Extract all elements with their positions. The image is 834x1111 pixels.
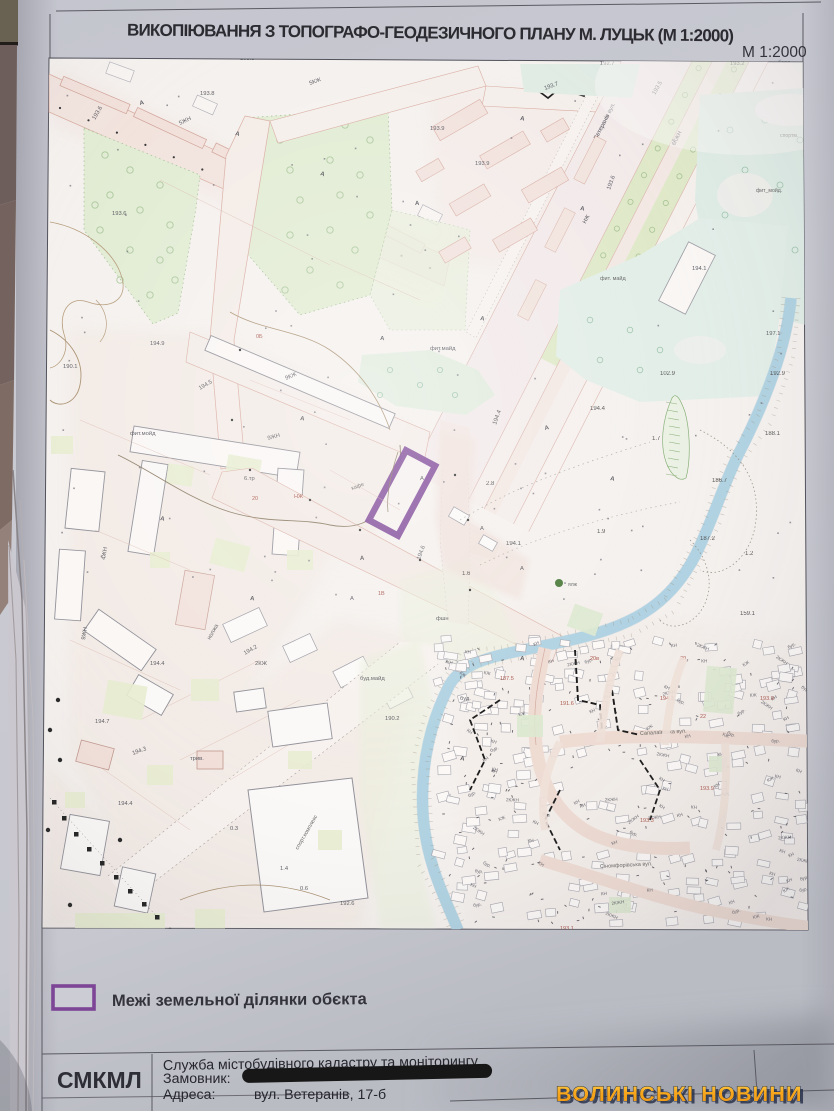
svg-text:Замовник:: Замовник: <box>163 1071 231 1087</box>
svg-text:вул. Ветеранів, 17-б: вул. Ветеранів, 17-б <box>254 1087 386 1103</box>
svg-text:М 1:2000: М 1:2000 <box>742 44 807 61</box>
svg-text:СМКМЛ: СМКМЛ <box>57 1067 142 1093</box>
svg-text:Межі земельної ділянки обєкта: Межі земельної ділянки обєкта <box>112 990 368 1010</box>
svg-text:ВОЛИНСЬКІ НОВИНИ: ВОЛИНСЬКІ НОВИНИ <box>556 1082 803 1106</box>
svg-text:Адреса:: Адреса: <box>163 1087 215 1103</box>
